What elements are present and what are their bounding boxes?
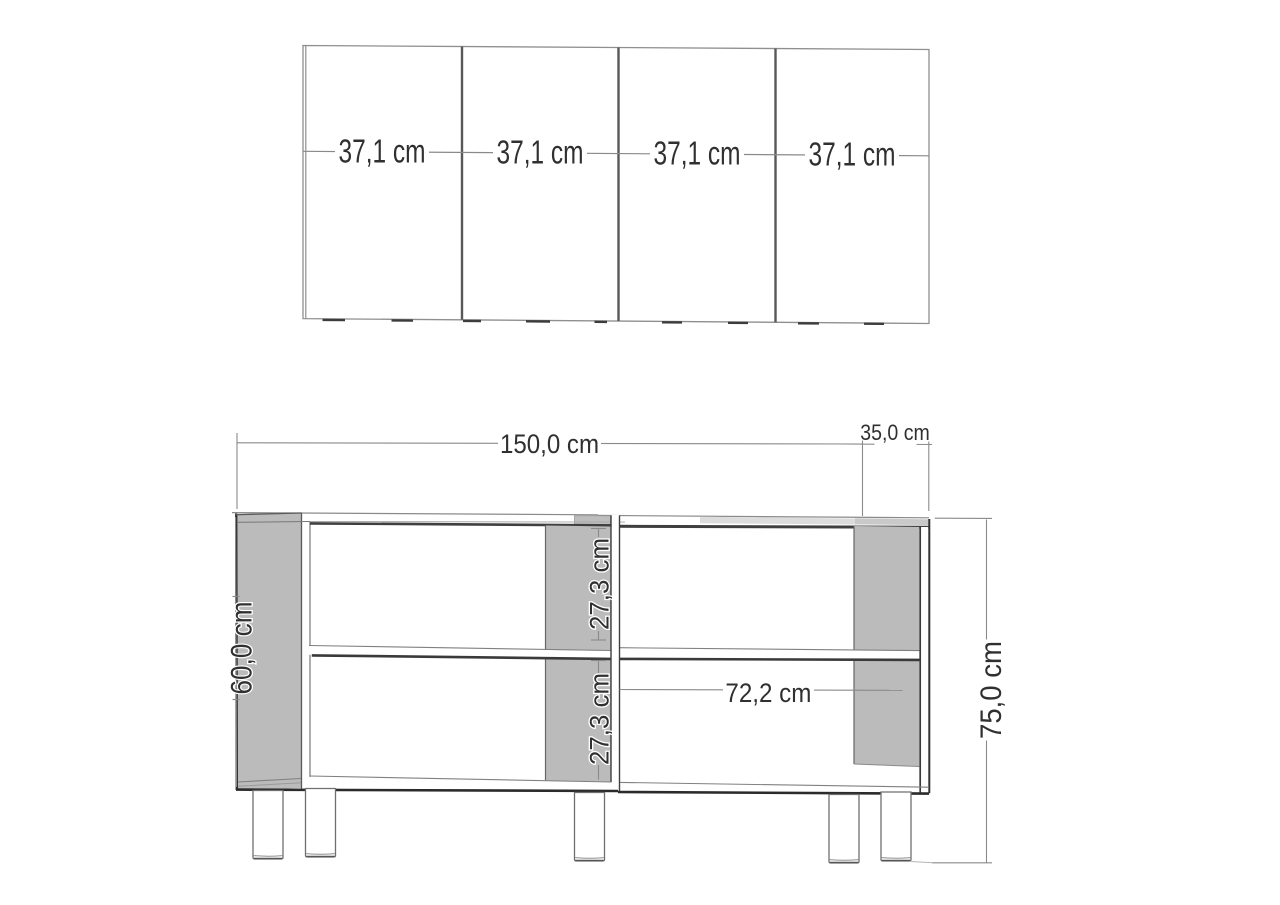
svg-text:60,0 cm: 60,0 cm: [226, 602, 259, 695]
svg-text:75,0 cm: 75,0 cm: [975, 641, 1008, 739]
svg-text:37,1 cm: 37,1 cm: [339, 133, 426, 170]
svg-text:27,3 cm: 27,3 cm: [585, 673, 615, 765]
svg-text:37,1 cm: 37,1 cm: [497, 134, 584, 171]
svg-text:150,0 cm: 150,0 cm: [500, 429, 599, 459]
svg-text:37,1 cm: 37,1 cm: [809, 136, 896, 173]
svg-text:37,1 cm: 37,1 cm: [654, 135, 741, 172]
svg-text:35,0 cm: 35,0 cm: [860, 420, 930, 445]
svg-text:72,2 cm: 72,2 cm: [725, 678, 811, 708]
svg-text:27,3 cm: 27,3 cm: [585, 538, 615, 630]
